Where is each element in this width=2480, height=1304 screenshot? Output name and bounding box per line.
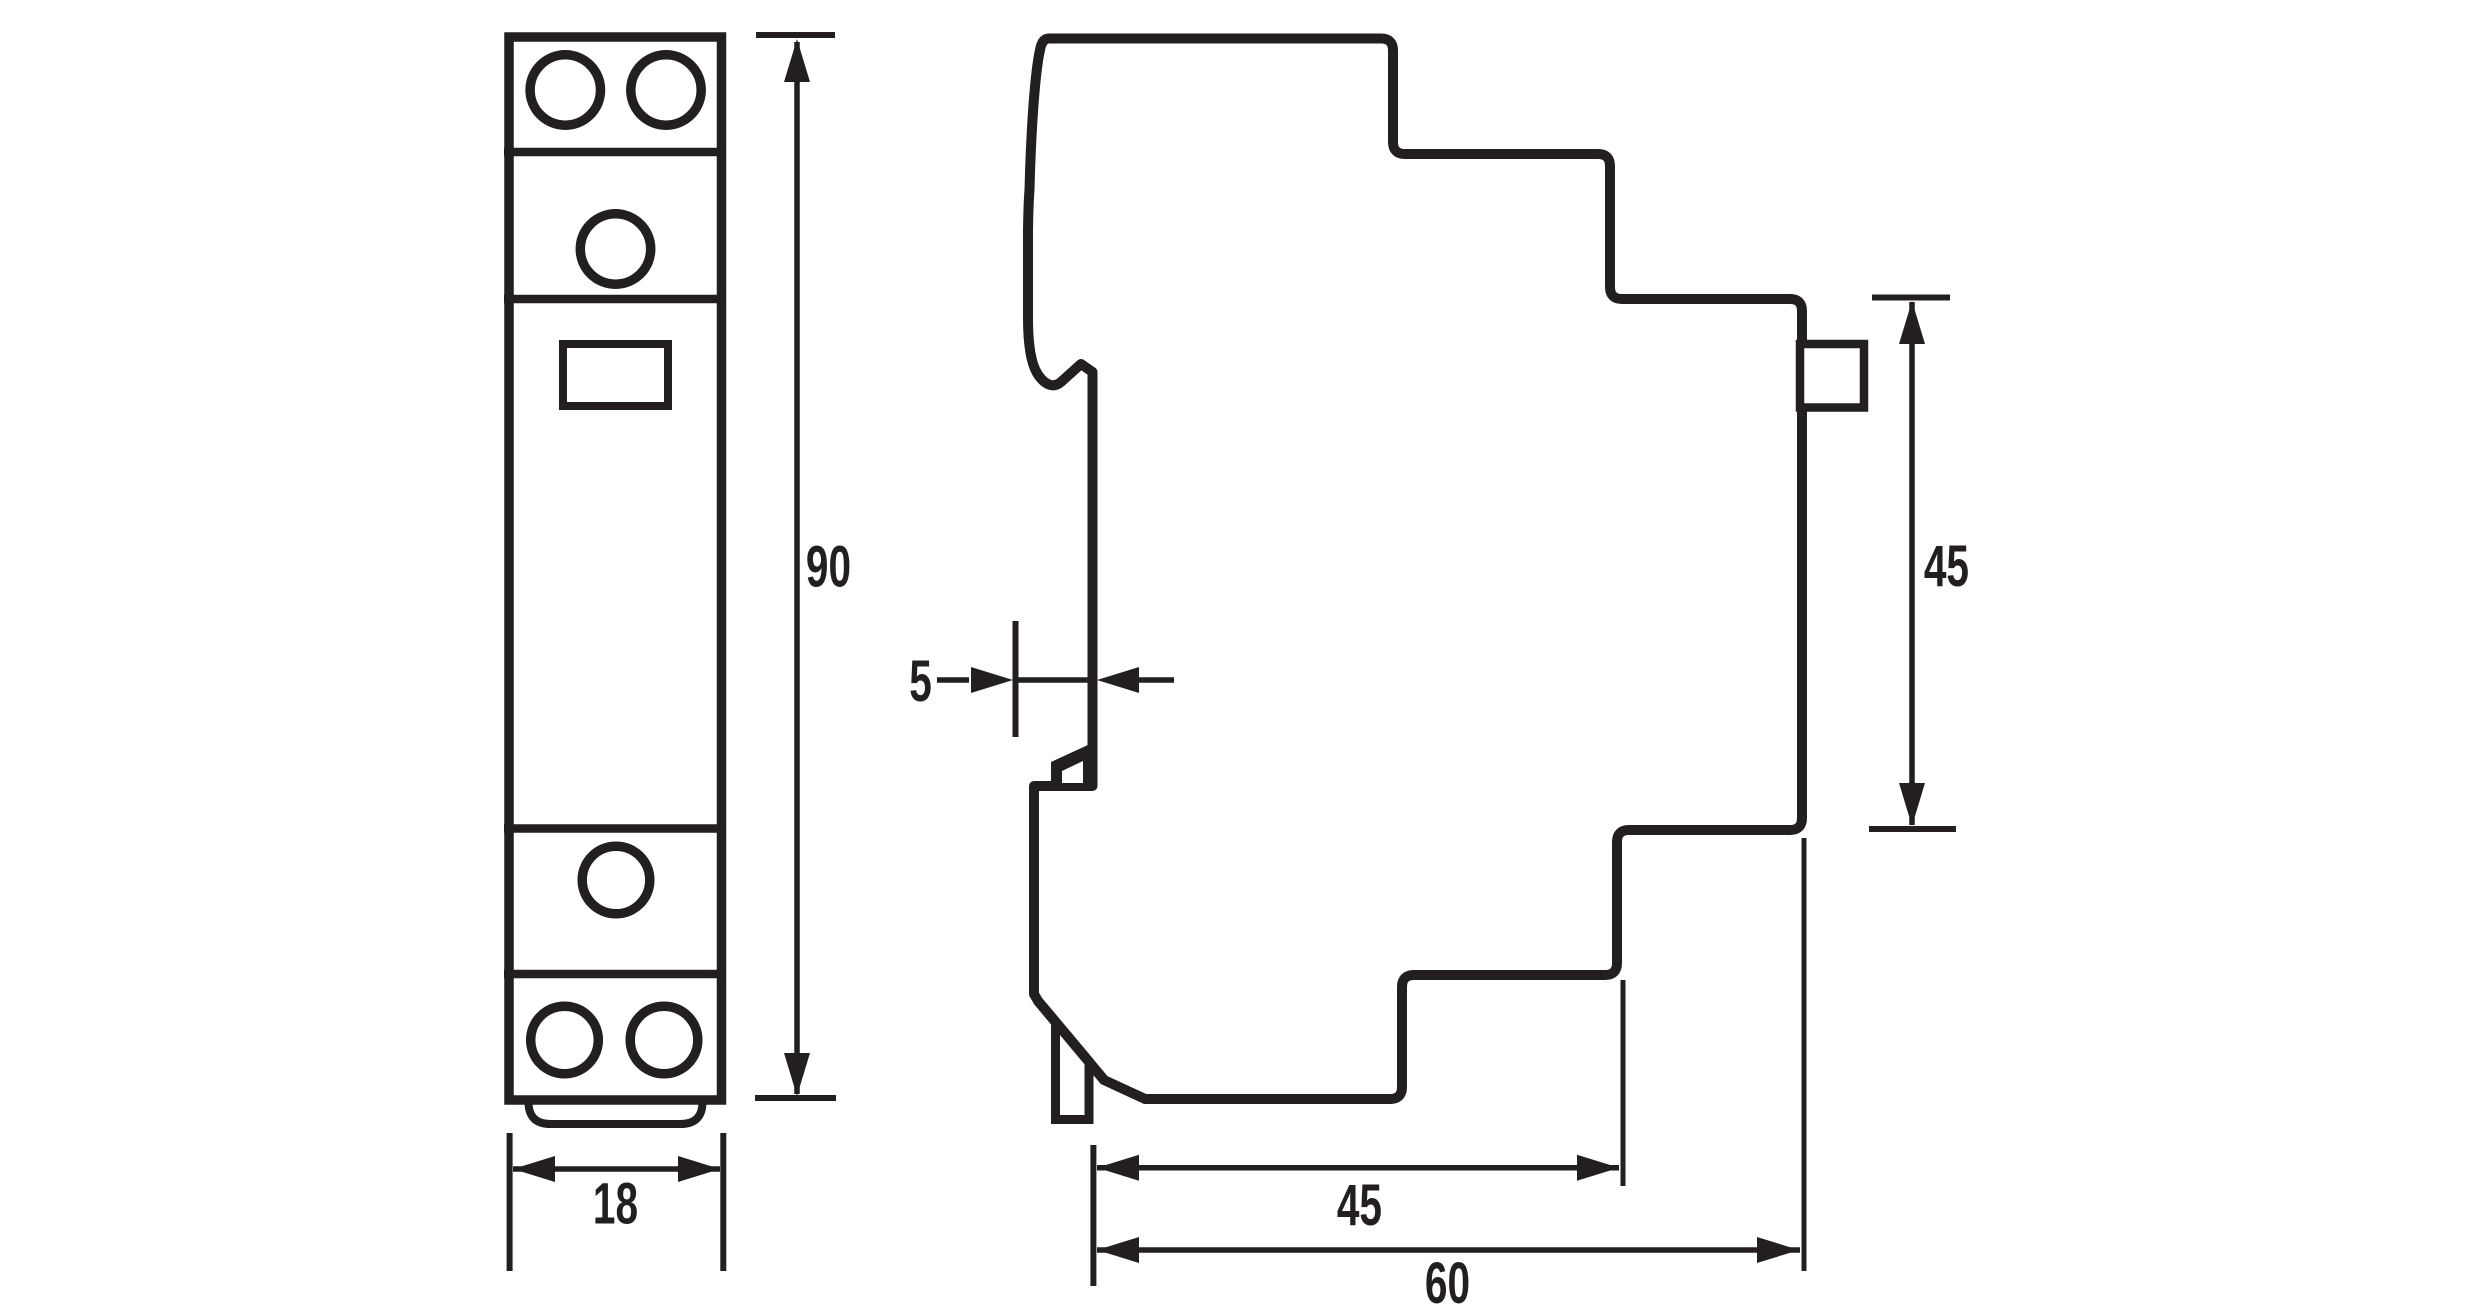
svg-text:90: 90 [806,534,851,599]
svg-text:45: 45 [1924,534,1969,599]
svg-text:18: 18 [593,1171,638,1236]
svg-text:5: 5 [909,649,932,714]
svg-text:45: 45 [1337,1173,1382,1238]
svg-text:60: 60 [1425,1251,1470,1304]
